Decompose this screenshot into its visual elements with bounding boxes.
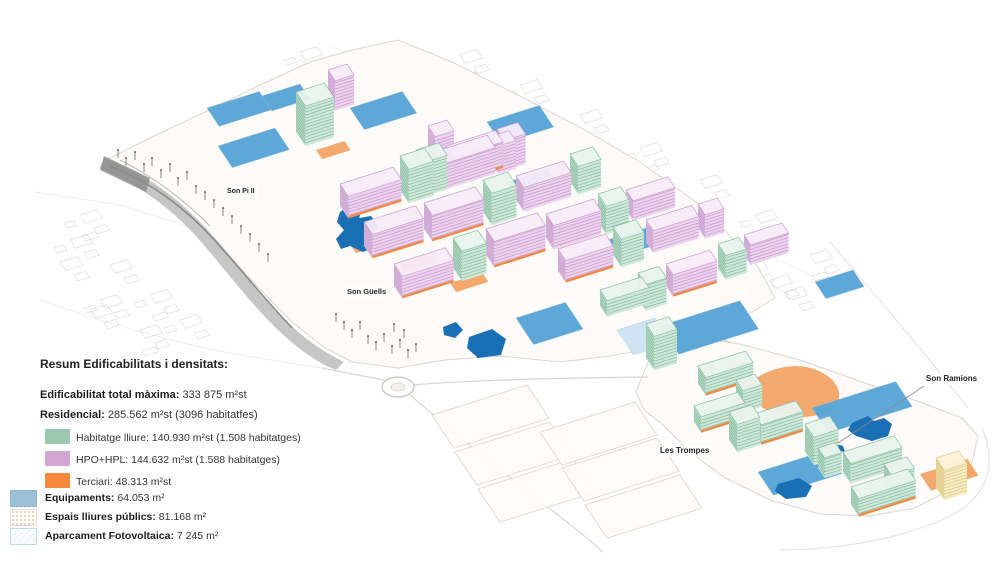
legend-row-aparcament: Aparcament Fotovoltaica: 7 245 m²	[45, 530, 218, 542]
swatch-aparcament-fotovoltaica	[10, 528, 37, 545]
legend-row-hpo-hpl: HPO+HPL: 144.632 m²st (1.588 habitatges)	[76, 454, 280, 466]
legend-residential-label: Residencial:	[40, 409, 105, 421]
legend-row-terciari: Terciari: 48.313 m²st	[76, 476, 171, 488]
swatch-hpo-hpl	[45, 451, 70, 466]
terciari-label: Terciari:	[76, 476, 113, 488]
habitatge-lliure-value: 140.930 m²st (1.508 habitatges)	[152, 432, 301, 444]
swatch-espais-lliures	[10, 509, 37, 526]
legend-row-equipaments: Equipaments: 64.053 m²	[45, 492, 165, 504]
legend-total-label: Edificabilitat total màxima:	[40, 389, 179, 401]
terciari-value: 48.313 m²st	[116, 476, 171, 488]
legend-residential-line: Residencial: 285.562 m²st (3096 habitatf…	[40, 409, 258, 421]
espais-lliures-label: Espais lliures públics:	[45, 511, 156, 523]
map-label-son-ramions: Son Ramions	[923, 374, 980, 385]
hpo-hpl-value: 144.632 m²st (1.588 habitatges)	[131, 454, 280, 466]
equipaments-value: 64.053 m²	[117, 492, 164, 504]
swatch-terciari	[45, 473, 70, 488]
aparcament-label: Aparcament Fotovoltaica:	[45, 530, 174, 542]
swatch-habitatge-lliure	[45, 429, 70, 444]
espais-lliures-value: 81.168 m²	[159, 511, 206, 523]
legend-row-espais-lliures: Espais lliures públics: 81.168 m²	[45, 511, 206, 523]
legend-total-value: 333 875 m²st	[182, 389, 246, 401]
map-label-son-guells: Son Güells	[344, 287, 389, 297]
legend-residential-value: 285.562 m²st (3096 habitatfes)	[108, 409, 258, 421]
map-canvas: Son Pi II Son Güells Les Trompes Son Ram…	[0, 0, 1000, 563]
legend-total-line: Edificabilitat total màxima: 333 875 m²s…	[40, 389, 247, 401]
legend-row-habitatge-lliure: Habitatge lliure: 140.930 m²st (1.508 ha…	[76, 432, 301, 444]
hpo-hpl-label: HPO+HPL:	[76, 454, 128, 466]
equipaments-label: Equipaments:	[45, 492, 114, 504]
swatch-equipaments	[10, 490, 37, 507]
map-label-son-pi-ii: Son Pi II	[224, 187, 258, 197]
aparcament-value: 7 245 m²	[177, 530, 218, 542]
map-label-les-trompes: Les Trompes	[657, 446, 712, 457]
legend-title: Resum Edificabilitats i densitats:	[40, 357, 228, 371]
habitatge-lliure-label: Habitatge lliure:	[76, 432, 149, 444]
